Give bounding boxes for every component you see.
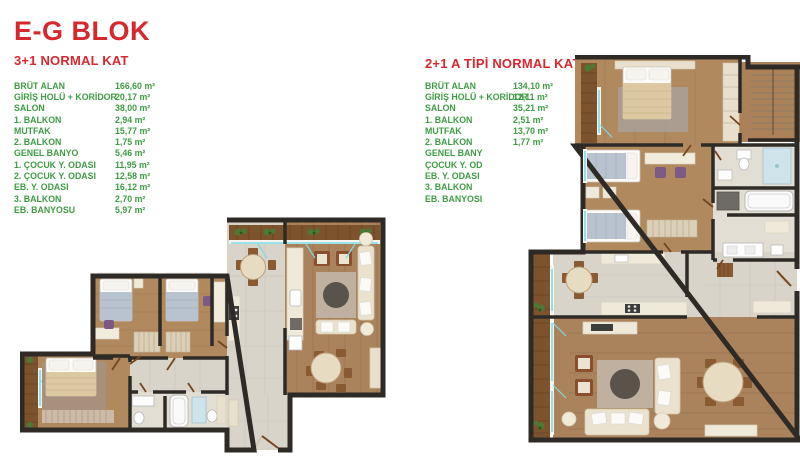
spec-row: MUTFAK15,77 m²: [14, 125, 214, 136]
spec-label: BRÜT ALAN: [14, 81, 115, 91]
spec-label: MUTFAK: [14, 126, 115, 136]
spec-label: SALON: [14, 103, 115, 113]
spec-row: GENEL BANYO5,46 m²: [14, 148, 214, 159]
page-title: E-G BLOK: [14, 16, 150, 47]
plan-title-3plus1: 3+1 NORMAL KAT: [14, 53, 129, 68]
brochure-page: E-G BLOK 3+1 NORMAL KAT 2+1 A TİPİ NORMA…: [0, 0, 800, 466]
spec-value: 38,00 m²: [115, 103, 150, 113]
floorplan-2plus1-svg: [465, 55, 800, 460]
floorplan-2plus1-image: [465, 55, 800, 460]
spec-value: 20,17 m²: [115, 92, 150, 102]
spec-value: 5,46 m²: [115, 148, 145, 158]
spec-value: 11,95 m²: [115, 160, 150, 170]
spec-value: 166,60 m²: [115, 81, 155, 91]
spec-value: 16,12 m²: [115, 182, 150, 192]
spec-row: 2. BALKON1,75 m²: [14, 136, 214, 147]
floorplan-3plus1-image: [20, 196, 420, 458]
spec-label: GENEL BANYO: [14, 148, 115, 158]
spec-value: 2,94 m²: [115, 115, 145, 125]
spec-value: 15,77 m²: [115, 126, 150, 136]
spec-label: 2. ÇOCUK Y. ODASI: [14, 171, 115, 181]
spec-label: EB. Y. ODASI: [14, 182, 115, 192]
spec-value: 1,75 m²: [115, 137, 145, 147]
spec-value: 12,58 m²: [115, 171, 150, 181]
spec-label: 1. BALKON: [14, 115, 115, 125]
spec-row: 1. ÇOCUK Y. ODASI11,95 m²: [14, 159, 214, 170]
spec-row: 2. ÇOCUK Y. ODASI12,58 m²: [14, 170, 214, 181]
floorplan-3plus1-svg: [20, 196, 420, 458]
spec-row: BRÜT ALAN166,60 m²: [14, 80, 214, 91]
spec-row: 1. BALKON2,94 m²: [14, 114, 214, 125]
spec-row: SALON38,00 m²: [14, 103, 214, 114]
master-bedroom: [23, 355, 114, 429]
spec-label: 1. ÇOCUK Y. ODASI: [14, 160, 115, 170]
spec-row: GİRİŞ HOLÜ + KORİDOR20,17 m²: [14, 91, 214, 102]
spec-row: EB. Y. ODASI16,12 m²: [14, 182, 214, 193]
balcony-top: [229, 225, 380, 244]
spec-label: 2. BALKON: [14, 137, 115, 147]
spec-label: GİRİŞ HOLÜ + KORİDOR: [14, 92, 115, 102]
